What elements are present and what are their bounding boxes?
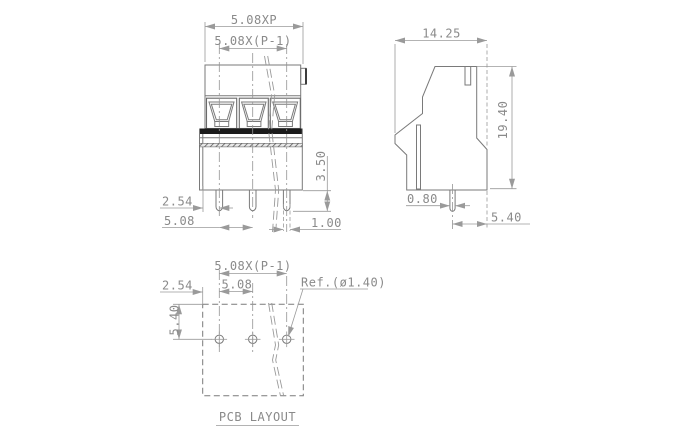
dim-side-pin-to-back-label: 5.40 — [491, 211, 522, 225]
dim-pcb-hole-pitch-label: 5.08 — [222, 278, 253, 292]
technical-drawing-canvas: 5.08XP 5.08X(P-1) 3.50 2.54 5.08 — [0, 0, 680, 440]
dim-front-pitch-total-label: 5.08XP — [231, 13, 277, 27]
pcb-layout-view: 5.08X(P-1) 5.08 2.54 5.40 Ref.(ø1.40) — [160, 259, 386, 426]
pcb-break-lines — [269, 303, 284, 396]
dim-front-pin-width-label: 1.00 — [311, 216, 342, 230]
side-inner-slot — [417, 125, 421, 189]
dim-side-pin-to-back: 5.40 — [453, 211, 531, 225]
dim-front-pitch-span-label: 5.08X(P-1) — [214, 34, 291, 48]
front-side-tab — [301, 68, 306, 84]
dim-front-pin-length-label: 3.50 — [314, 151, 328, 182]
pcb-hole-ref-label: Ref.(ø1.40) — [301, 276, 386, 290]
dim-side-pin-width-label: 0.80 — [407, 192, 438, 206]
drawing-svg: 5.08XP 5.08X(P-1) 3.50 2.54 5.08 — [0, 0, 680, 440]
pcb-hole-3 — [279, 332, 295, 348]
dim-pcb-pitch-span: 5.08X(P-1) — [214, 259, 291, 274]
dim-side-depth-label: 14.25 — [422, 27, 461, 41]
funnel-2 — [239, 98, 268, 128]
funnel-1 — [207, 98, 237, 128]
dim-front-pin-pitch: 5.08 — [162, 214, 253, 228]
funnel-3 — [270, 98, 300, 128]
front-view: 5.08XP 5.08X(P-1) 3.50 2.54 5.08 — [160, 13, 342, 232]
side-view: 14.25 19.40 0.80 5.40 — [395, 27, 530, 230]
dim-pcb-edge-offset-label: 5.40 — [168, 305, 182, 336]
dim-front-pin-length: 3.50 — [293, 151, 331, 212]
pcb-caption: PCB LAYOUT — [216, 410, 299, 426]
dim-pcb-hole-pitch: 5.08 — [219, 278, 252, 292]
dim-front-pitch-span: 5.08X(P-1) — [214, 34, 291, 49]
dim-side-pin-width: 0.80 — [406, 192, 470, 206]
dim-front-pin-pitch-label: 5.08 — [164, 214, 195, 228]
dim-side-height: 19.40 — [477, 67, 517, 189]
dim-front-pin-width: 1.00 — [269, 204, 342, 231]
side-top-slot — [465, 67, 471, 86]
dim-side-height-label: 19.40 — [496, 101, 510, 140]
dim-pcb-edge-offset: 5.40 — [168, 304, 213, 339]
dim-front-edge-to-pin-label: 2.54 — [162, 195, 193, 209]
pcb-caption-label: PCB LAYOUT — [219, 410, 296, 424]
side-profile — [395, 67, 487, 191]
dim-pcb-edge-to-hole: 2.54 — [160, 279, 203, 305]
dim-pcb-pitch-span-label: 5.08X(P-1) — [214, 259, 291, 273]
dim-pcb-edge-to-hole-label: 2.54 — [162, 279, 193, 293]
